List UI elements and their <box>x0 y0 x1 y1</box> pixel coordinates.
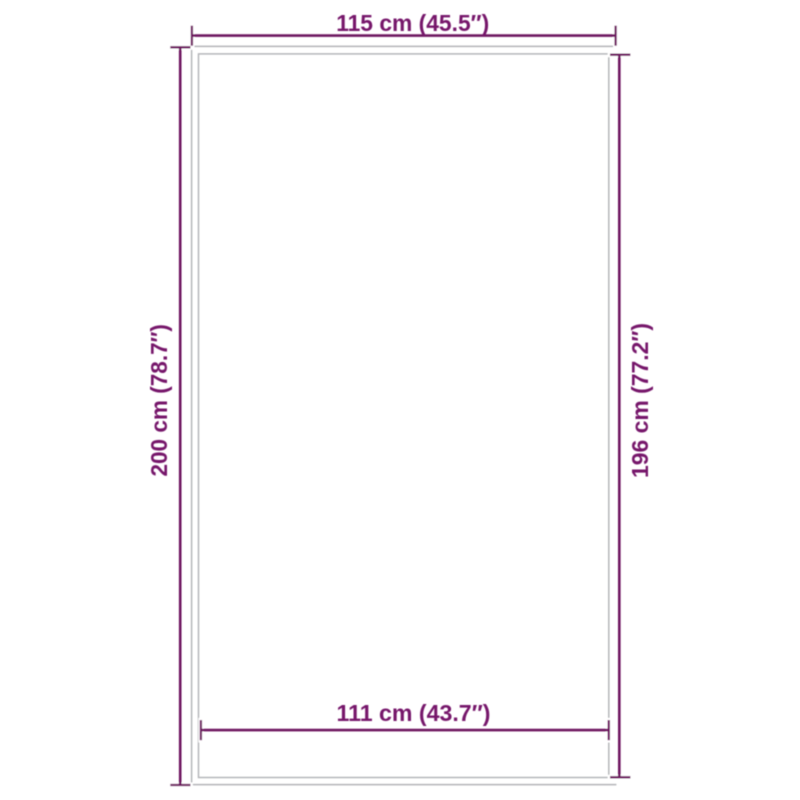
svg-text:196 cm (77.2″): 196 cm (77.2″) <box>627 323 653 478</box>
svg-text:115 cm (45.5″): 115 cm (45.5″) <box>336 10 489 36</box>
svg-text:200 cm (78.7″): 200 cm (78.7″) <box>146 324 172 477</box>
svg-text:111 cm (43.7″): 111 cm (43.7″) <box>337 700 491 726</box>
